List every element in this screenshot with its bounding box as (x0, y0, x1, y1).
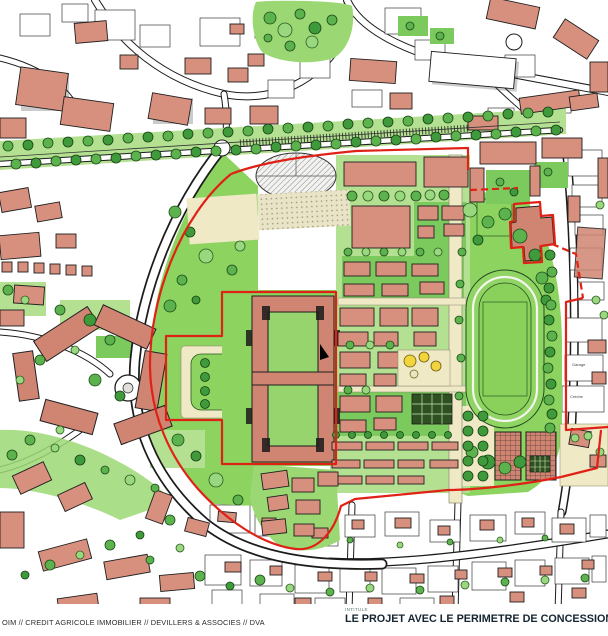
credits-text: OIM // CREDIT AGRICOLE IMMOBILIER // DEV… (2, 618, 265, 627)
title-label: INTITULE (345, 607, 368, 612)
campus-block (222, 290, 340, 466)
caption-strip: OIM // CREDIT AGRICOLE IMMOBILIER // DEV… (0, 604, 608, 636)
site-plan-svg: Garage Crèche (0, 0, 608, 612)
orchard (398, 350, 450, 386)
plan-title: LE PROJET AVEC LE PERIMETRE DE CONCESSIO… (345, 613, 608, 625)
garden-plots (412, 394, 452, 424)
athletics-track (466, 270, 544, 428)
map-label-garage: Garage (572, 362, 586, 367)
masterplan-page: Garage Crèche OIM // CREDIT AGRICOLE IMM… (0, 0, 608, 636)
map-label-creche: Crèche (570, 394, 584, 399)
roundabout-northeast (506, 34, 522, 50)
paved-esplanade (257, 190, 351, 231)
